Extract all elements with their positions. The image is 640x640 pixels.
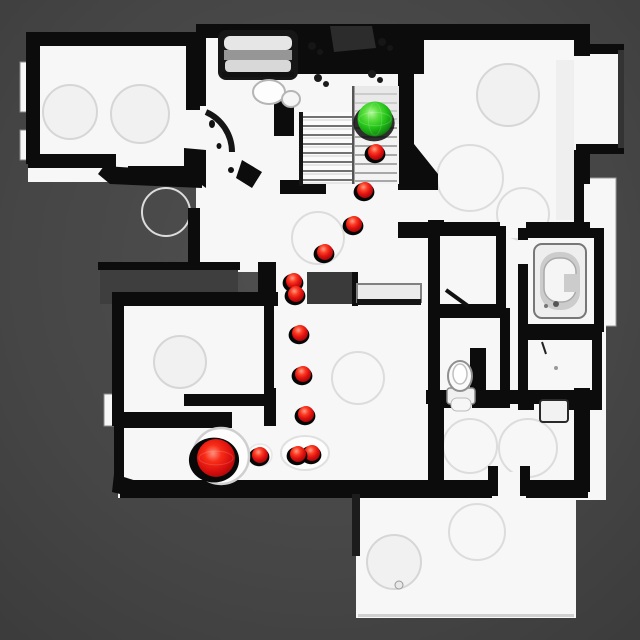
dresser xyxy=(307,272,357,304)
path-waypoint xyxy=(288,286,304,302)
coat-hook xyxy=(308,42,316,50)
coat-hook xyxy=(378,38,386,46)
coat-hook xyxy=(323,81,329,87)
rug-circle xyxy=(477,64,539,126)
floor-speck xyxy=(395,581,403,589)
rug-circle xyxy=(367,535,421,589)
coat-hook xyxy=(377,77,383,83)
door-leaf xyxy=(540,400,568,422)
path-waypoint xyxy=(295,366,311,382)
stair-divider xyxy=(352,86,355,184)
path-waypoint xyxy=(357,182,373,198)
rug-circle xyxy=(154,336,206,388)
coat-hook xyxy=(314,74,322,82)
wall-streak xyxy=(556,60,574,220)
goal-sphere xyxy=(197,439,235,477)
floorplan-render xyxy=(0,0,640,640)
coat-hook xyxy=(317,49,323,55)
floor-edge xyxy=(358,614,574,617)
path-waypoint xyxy=(346,216,362,232)
floorplan-viewport xyxy=(0,0,640,640)
path-waypoint xyxy=(317,244,333,260)
start-sphere xyxy=(358,102,393,137)
alcove-edge xyxy=(618,50,624,148)
path-waypoint xyxy=(368,144,384,160)
path-waypoint xyxy=(292,325,308,341)
shelf-shadow xyxy=(357,299,421,305)
path-waypoint xyxy=(252,447,268,463)
rug-circle xyxy=(111,85,169,143)
coat-hook xyxy=(368,70,376,78)
bathtub xyxy=(534,244,586,318)
door-gap xyxy=(518,240,528,264)
stair-rail xyxy=(299,112,303,186)
landing-object xyxy=(330,26,376,52)
wall-shadow xyxy=(352,494,360,556)
pillow xyxy=(282,91,300,107)
bed xyxy=(218,30,298,80)
wall xyxy=(98,262,240,270)
path-waypoint xyxy=(290,446,306,462)
coat-hook xyxy=(387,45,393,51)
path-waypoint xyxy=(298,406,314,422)
rug-circle xyxy=(43,85,97,139)
pillow xyxy=(253,80,285,104)
